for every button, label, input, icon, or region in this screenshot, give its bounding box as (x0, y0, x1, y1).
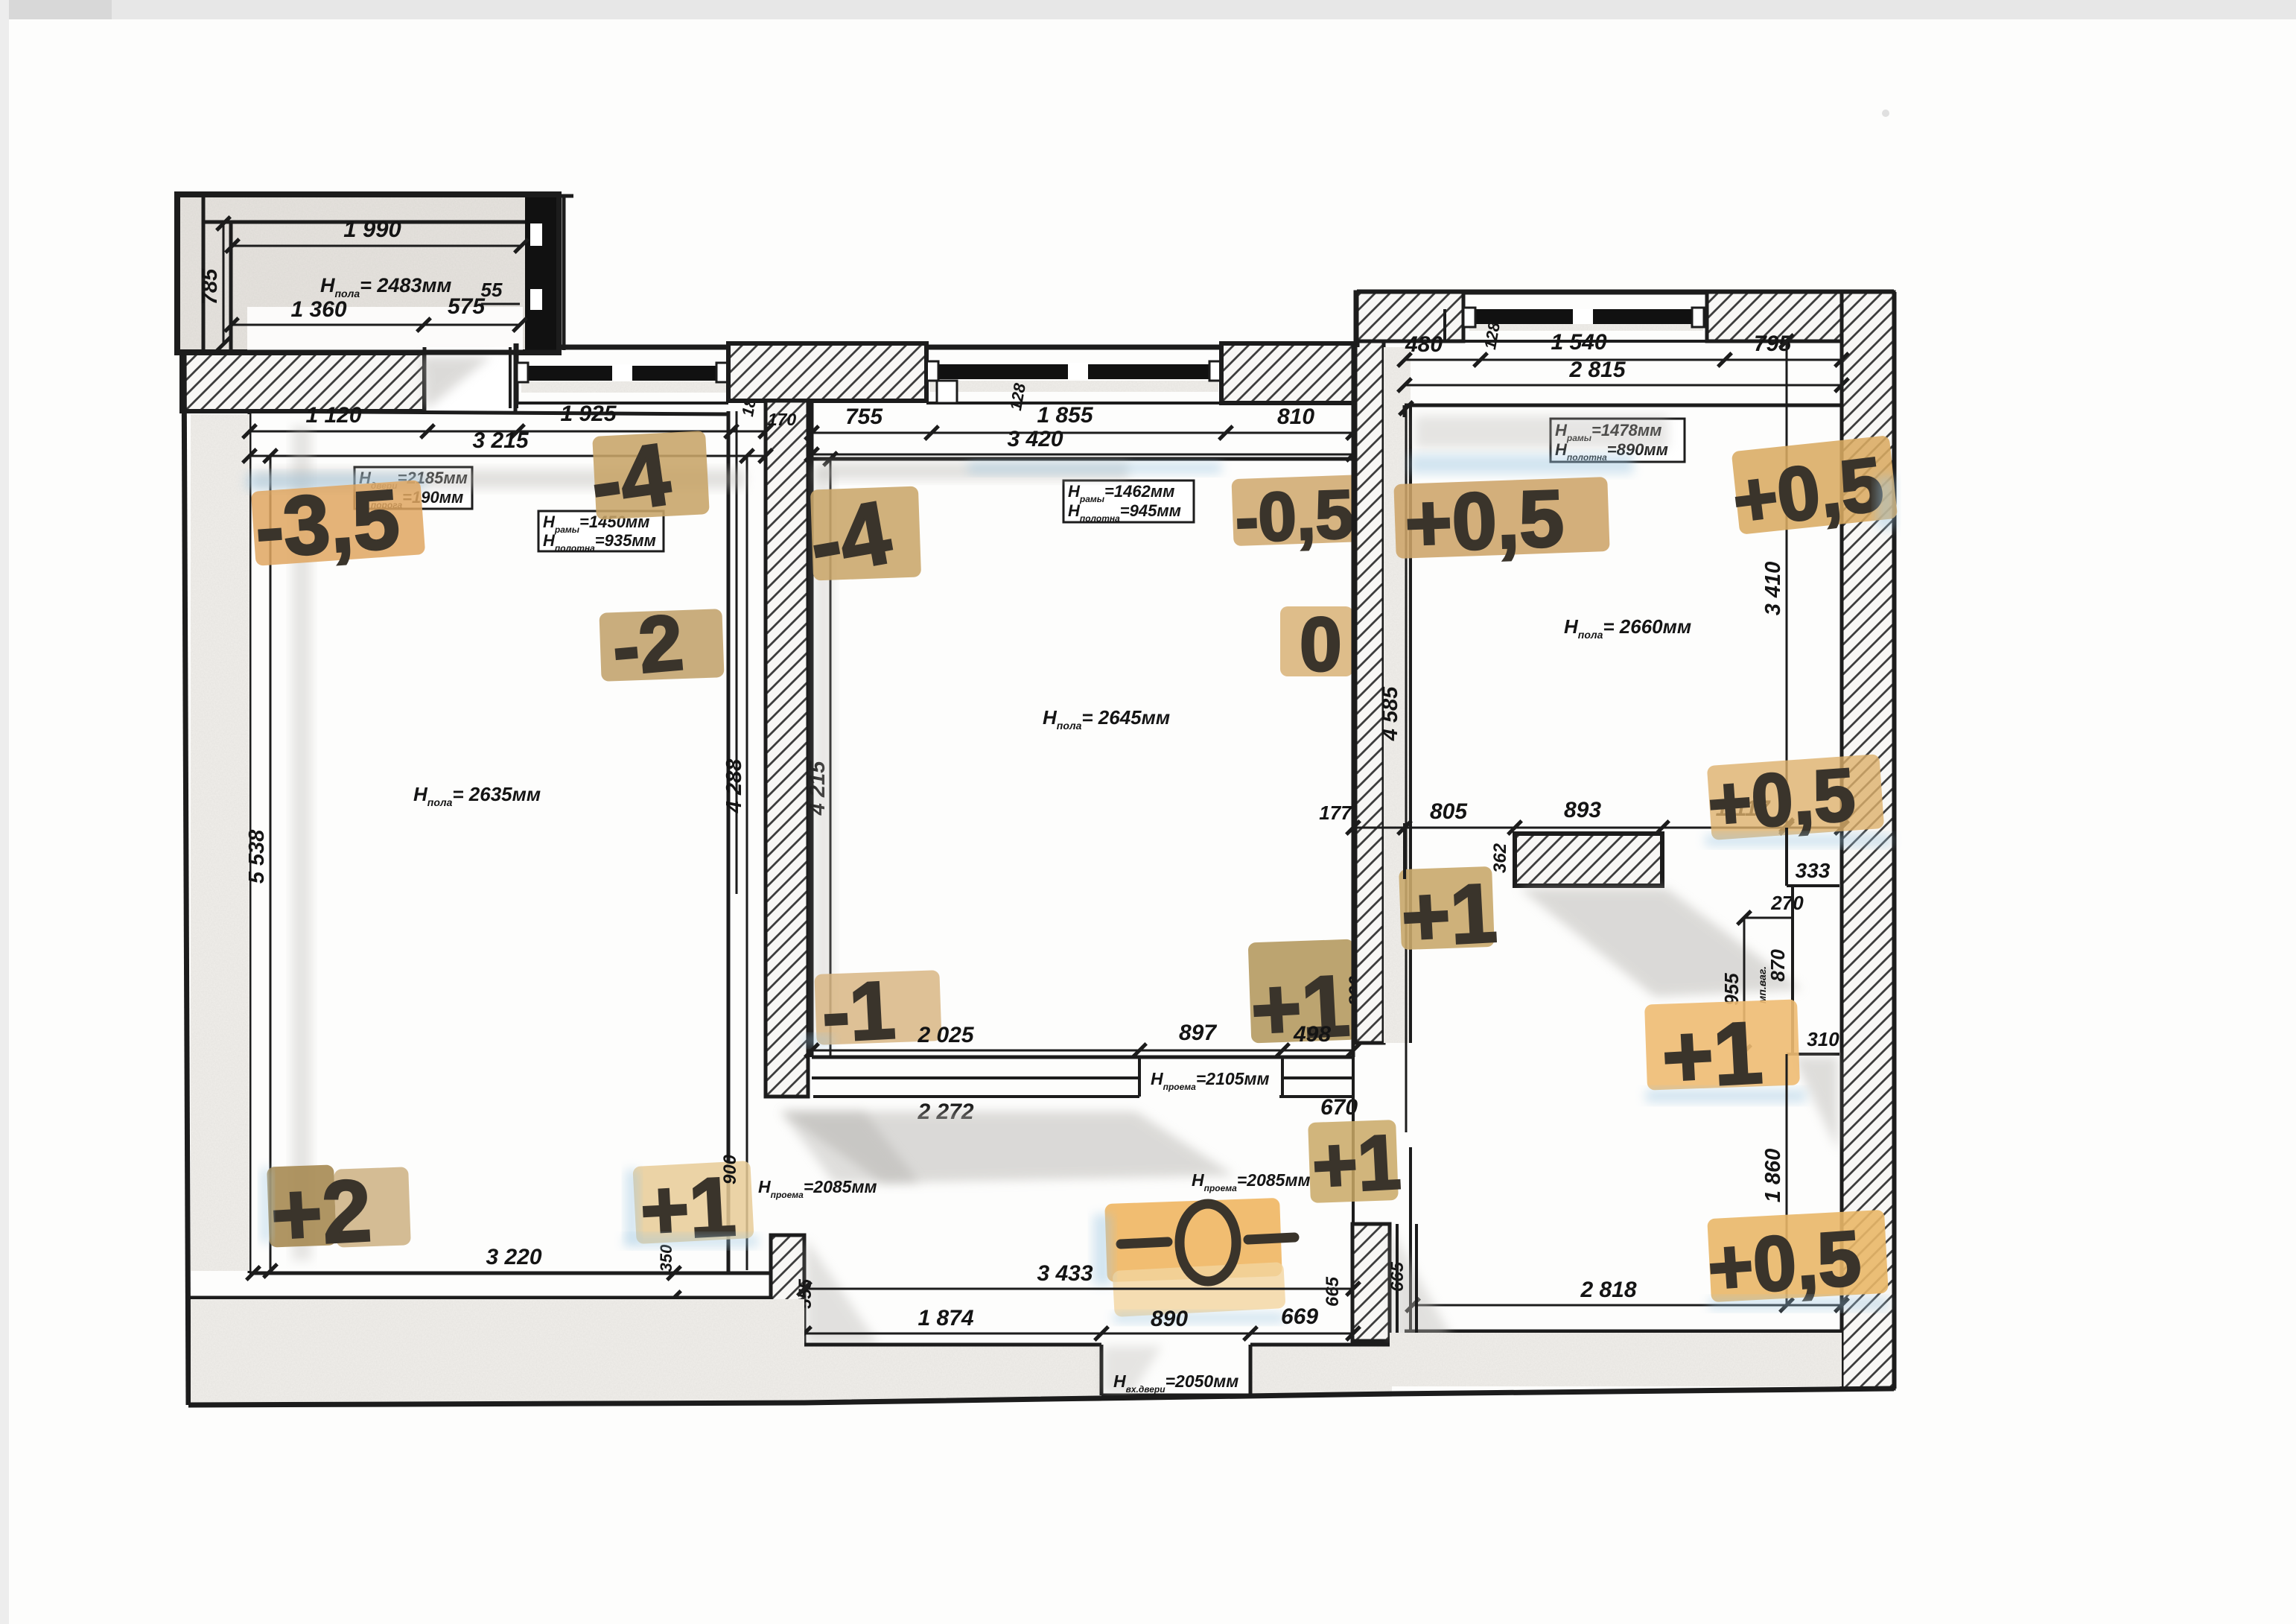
svg-text:+0,5: +0,5 (1729, 441, 1888, 544)
svg-text:480: 480 (1405, 332, 1443, 357)
svg-text:3 215: 3 215 (472, 428, 529, 453)
svg-text:1 360: 1 360 (290, 297, 346, 322)
svg-text:3 220: 3 220 (486, 1245, 541, 1269)
svg-text:3 433: 3 433 (1037, 1261, 1093, 1286)
svg-text:2 025: 2 025 (917, 1023, 974, 1047)
svg-text:755: 755 (845, 405, 883, 429)
svg-text:333: 333 (1796, 859, 1831, 882)
svg-text:1 120: 1 120 (305, 403, 361, 428)
svg-text:1 860: 1 860 (1761, 1149, 1785, 1203)
svg-text:2 818: 2 818 (1580, 1278, 1636, 1302)
svg-text:2 815: 2 815 (1568, 358, 1626, 382)
svg-text:4 288: 4 288 (722, 758, 746, 813)
svg-text:870: 870 (1766, 949, 1789, 982)
svg-text:5 538: 5 538 (245, 829, 269, 884)
svg-text:+0,5: +0,5 (1404, 473, 1565, 568)
svg-text:-0,5: -0,5 (1234, 477, 1355, 556)
svg-text:1 540: 1 540 (1551, 330, 1606, 355)
svg-text:270: 270 (1770, 892, 1804, 914)
svg-text:+0,5: +0,5 (1705, 1215, 1864, 1312)
svg-text:955: 955 (1720, 973, 1743, 1006)
svg-text:805: 805 (1430, 799, 1468, 824)
svg-text:1 990: 1 990 (343, 216, 401, 242)
svg-text:-3,5: -3,5 (252, 472, 402, 575)
svg-text:890: 890 (1151, 1307, 1188, 1331)
svg-text:170: 170 (768, 410, 797, 429)
svg-text:3 410: 3 410 (1761, 562, 1785, 616)
svg-text:785: 785 (198, 268, 222, 305)
svg-text:4 585: 4 585 (1378, 686, 1402, 741)
svg-text:1 855: 1 855 (1037, 403, 1093, 428)
svg-text:55: 55 (481, 279, 503, 301)
svg-text:897: 897 (1179, 1021, 1217, 1045)
svg-text:-4: -4 (585, 425, 675, 533)
svg-text:1 874: 1 874 (918, 1306, 973, 1330)
svg-text:177: 177 (1319, 802, 1352, 824)
svg-text:810: 810 (1277, 405, 1314, 429)
svg-text:+1: +1 (1310, 1119, 1402, 1210)
svg-text:-2: -2 (609, 598, 687, 692)
svg-text:498: 498 (1293, 1022, 1331, 1047)
svg-text:+1: +1 (1399, 866, 1499, 964)
svg-text:0: 0 (1300, 602, 1342, 687)
svg-text:665: 665 (1323, 1276, 1343, 1307)
svg-text:669: 669 (1281, 1304, 1318, 1329)
svg-text:+0,5: +0,5 (1705, 752, 1858, 846)
svg-text:310: 310 (1807, 1028, 1839, 1050)
svg-text:1 925: 1 925 (560, 402, 617, 426)
svg-text:893: 893 (1564, 798, 1601, 822)
svg-text:900: 900 (720, 1154, 740, 1184)
svg-text:+2: +2 (268, 1161, 373, 1265)
svg-text:3 420: 3 420 (1007, 427, 1063, 451)
